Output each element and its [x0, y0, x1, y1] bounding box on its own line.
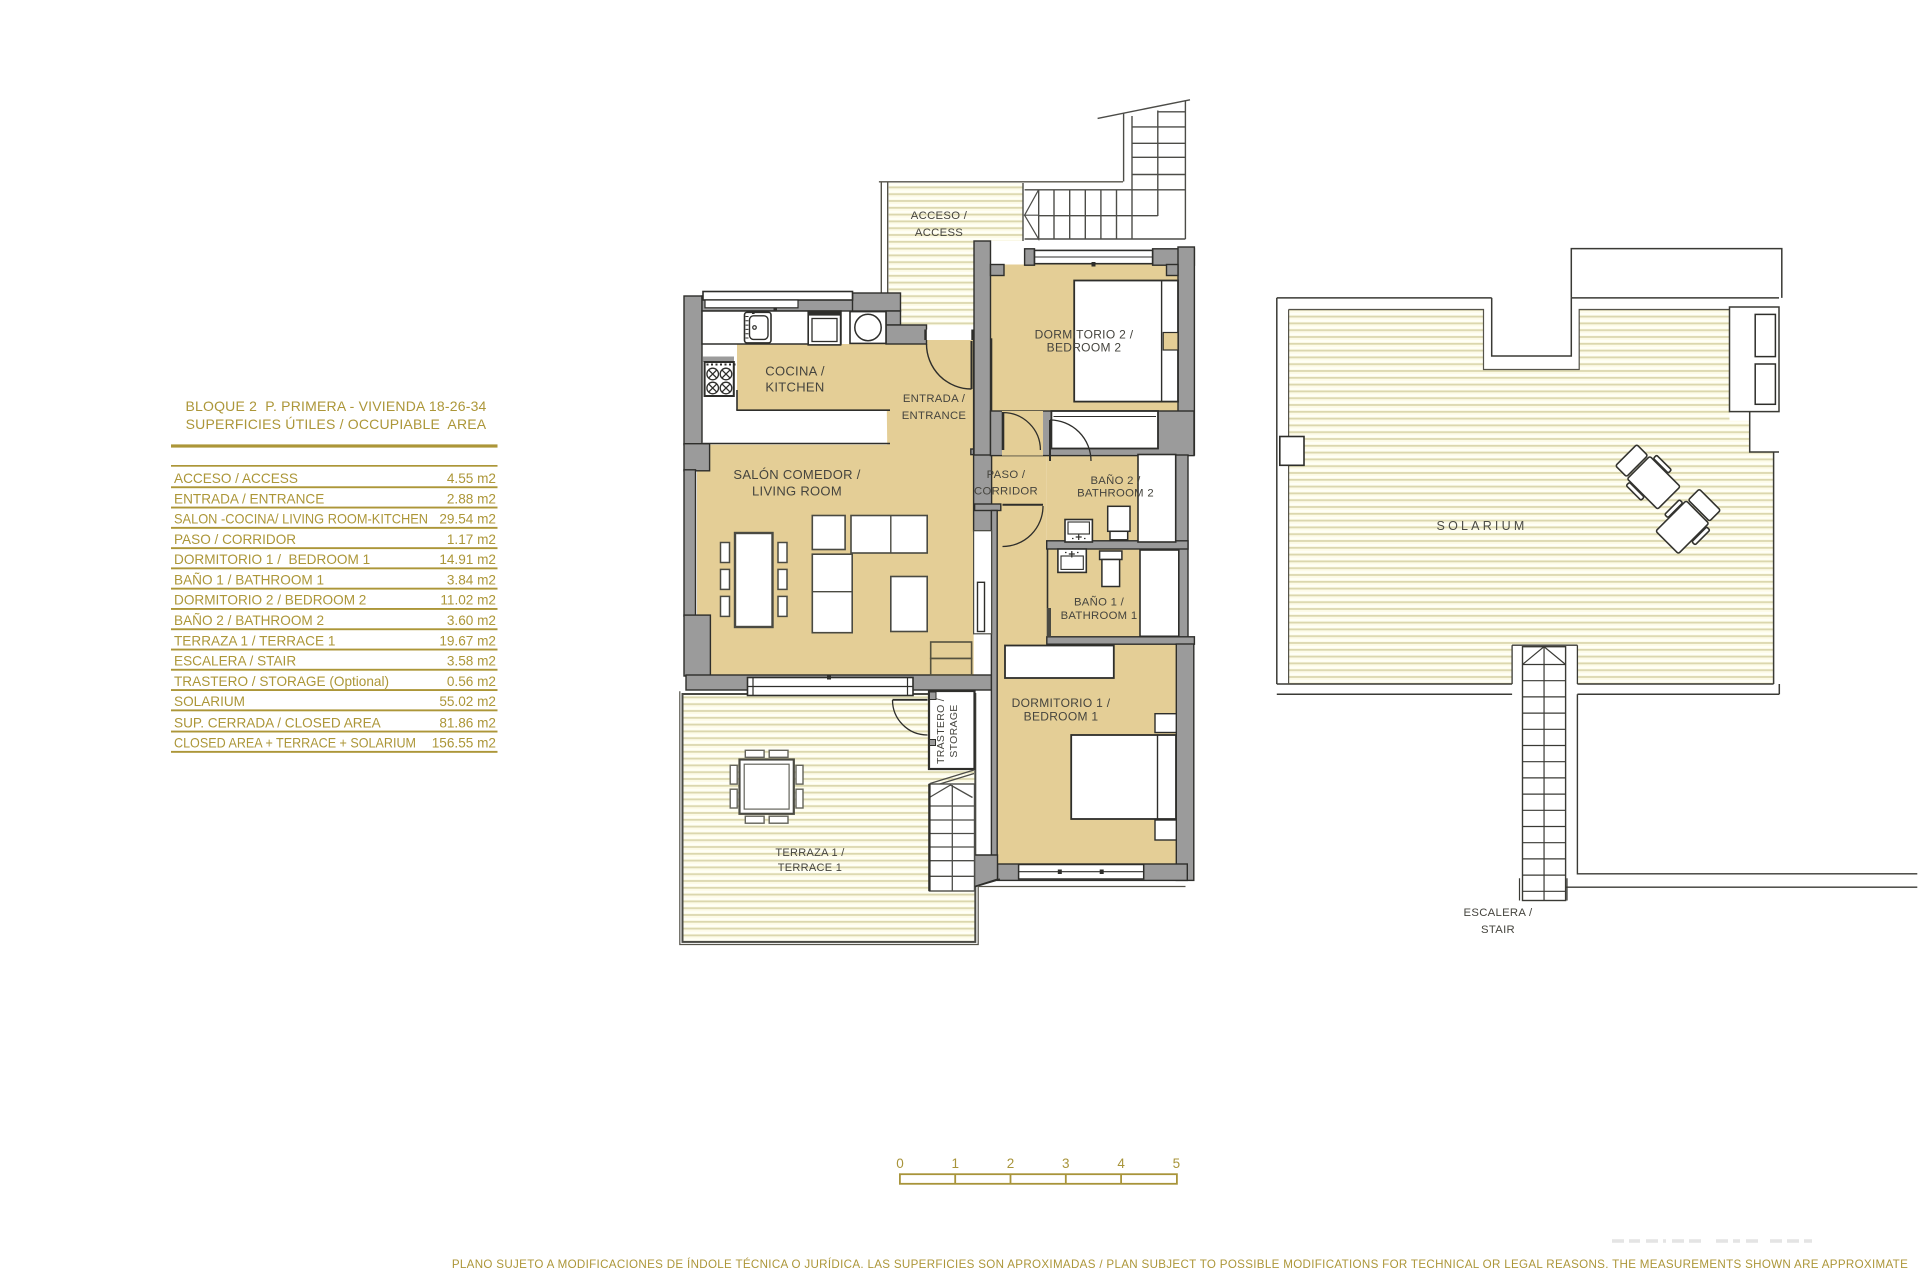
svg-text:PASO / CORRIDOR: PASO / CORRIDOR [174, 532, 296, 547]
svg-text:156.55 m2: 156.55 m2 [432, 736, 496, 751]
svg-text:SOLARIUM: SOLARIUM [1437, 519, 1528, 533]
svg-text:ENTRADA /: ENTRADA / [903, 393, 966, 405]
svg-text:DORMITORIO 1 / BEDROOM 1: DORMITORIO 1 / BEDROOM 1 [174, 552, 370, 567]
svg-text:55.02 m2: 55.02 m2 [439, 694, 496, 709]
svg-text:ESCALERA /: ESCALERA / [1464, 907, 1533, 919]
svg-text:BAÑO 2 /: BAÑO 2 / [1090, 474, 1141, 487]
svg-text:14.91 m2: 14.91 m2 [439, 552, 496, 567]
svg-text:ENTRANCE: ENTRANCE [902, 410, 967, 422]
svg-text:ACCESS: ACCESS [915, 227, 963, 239]
svg-text:TERRAZA 1 /: TERRAZA 1 / [775, 847, 845, 859]
svg-text:BATHROOM 2: BATHROOM 2 [1077, 488, 1154, 500]
svg-text:CLOSED AREA + TERRACE + SOLARI: CLOSED AREA + TERRACE + SOLARIUM [174, 736, 416, 751]
svg-text:DORMITORIO 2 /: DORMITORIO 2 / [1035, 328, 1134, 342]
svg-text:3: 3 [1062, 1156, 1070, 1171]
svg-text:BAÑO 1 /: BAÑO 1 / [1074, 596, 1125, 609]
svg-text:11.02 m2: 11.02 m2 [440, 593, 496, 608]
svg-text:4: 4 [1117, 1156, 1125, 1171]
svg-text:STORAGE: STORAGE [948, 704, 960, 757]
svg-text:COCINA /: COCINA / [765, 364, 825, 379]
svg-text:0: 0 [896, 1156, 904, 1171]
svg-text:ACCESO /: ACCESO / [911, 210, 968, 222]
svg-text:ENTRADA / ENTRANCE: ENTRADA / ENTRANCE [174, 491, 324, 506]
svg-text:0.56 m2: 0.56 m2 [447, 674, 496, 689]
svg-text:PLANO SUJETO A MODIFICACIONES: PLANO SUJETO A MODIFICACIONES DE ÍNDOLE … [452, 1258, 1908, 1271]
svg-text:3.58 m2: 3.58 m2 [447, 654, 496, 669]
svg-text:STAIR: STAIR [1481, 924, 1515, 936]
svg-text:BLOQUE 2 P. PRIMERA - VIVIEND: BLOQUE 2 P. PRIMERA - VIVIENDA 18-26-34 [185, 398, 486, 414]
svg-text:KITCHEN: KITCHEN [765, 380, 824, 395]
svg-text:BATHROOM 1: BATHROOM 1 [1061, 610, 1138, 622]
svg-text:BAÑO 1 / BATHROOM 1: BAÑO 1 / BATHROOM 1 [174, 572, 324, 587]
svg-text:SOLARIUM: SOLARIUM [174, 694, 245, 709]
svg-text:2.88 m2: 2.88 m2 [447, 491, 496, 506]
svg-text:SALON -COCINA/ LIVING ROOM-KIT: SALON -COCINA/ LIVING ROOM-KITCHEN [174, 512, 428, 527]
svg-text:81.86 m2: 81.86 m2 [439, 715, 496, 730]
svg-text:LIVING ROOM: LIVING ROOM [752, 484, 842, 499]
svg-text:BAÑO 2 / BATHROOM 2: BAÑO 2 / BATHROOM 2 [174, 613, 324, 628]
svg-text:BEDROOM 1: BEDROOM 1 [1024, 710, 1099, 724]
svg-text:19.67 m2: 19.67 m2 [439, 633, 496, 648]
svg-text:SUP. CERRADA / CLOSED AREA: SUP. CERRADA / CLOSED AREA [174, 715, 382, 730]
svg-text:4.55 m2: 4.55 m2 [447, 471, 496, 486]
svg-text:TERRAZA 1 / TERRACE 1: TERRAZA 1 / TERRACE 1 [174, 633, 335, 648]
svg-text:3.84 m2: 3.84 m2 [447, 572, 496, 587]
svg-text:1.17 m2: 1.17 m2 [447, 532, 496, 547]
svg-text:BEDROOM 2: BEDROOM 2 [1047, 341, 1122, 355]
svg-text:ACCESO / ACCESS: ACCESO / ACCESS [174, 471, 298, 486]
svg-text:ESCALERA / STAIR: ESCALERA / STAIR [174, 654, 296, 669]
svg-text:SALÓN COMEDOR /: SALÓN COMEDOR / [733, 467, 860, 482]
svg-text:TRASTERO / STORAGE (Optional): TRASTERO / STORAGE (Optional) [174, 674, 389, 689]
svg-text:5: 5 [1173, 1156, 1181, 1171]
svg-text:SUPERFICIES ÚTILES / OCCUPIABL: SUPERFICIES ÚTILES / OCCUPIABLE AREA [186, 416, 487, 432]
svg-text:PASO /: PASO / [987, 469, 1026, 481]
svg-text:DORMITORIO 2 / BEDROOM 2: DORMITORIO 2 / BEDROOM 2 [174, 593, 366, 608]
svg-text:CORRIDOR: CORRIDOR [974, 486, 1038, 498]
svg-text:1: 1 [951, 1156, 959, 1171]
svg-text:DORMITORIO 1 /: DORMITORIO 1 / [1012, 696, 1111, 710]
svg-text:TERRACE 1: TERRACE 1 [778, 862, 842, 874]
svg-text:3.60 m2: 3.60 m2 [447, 613, 496, 628]
svg-text:2: 2 [1007, 1156, 1015, 1171]
svg-text:TRASTERO /: TRASTERO / [935, 698, 947, 764]
svg-text:29.54 m2: 29.54 m2 [439, 512, 496, 527]
